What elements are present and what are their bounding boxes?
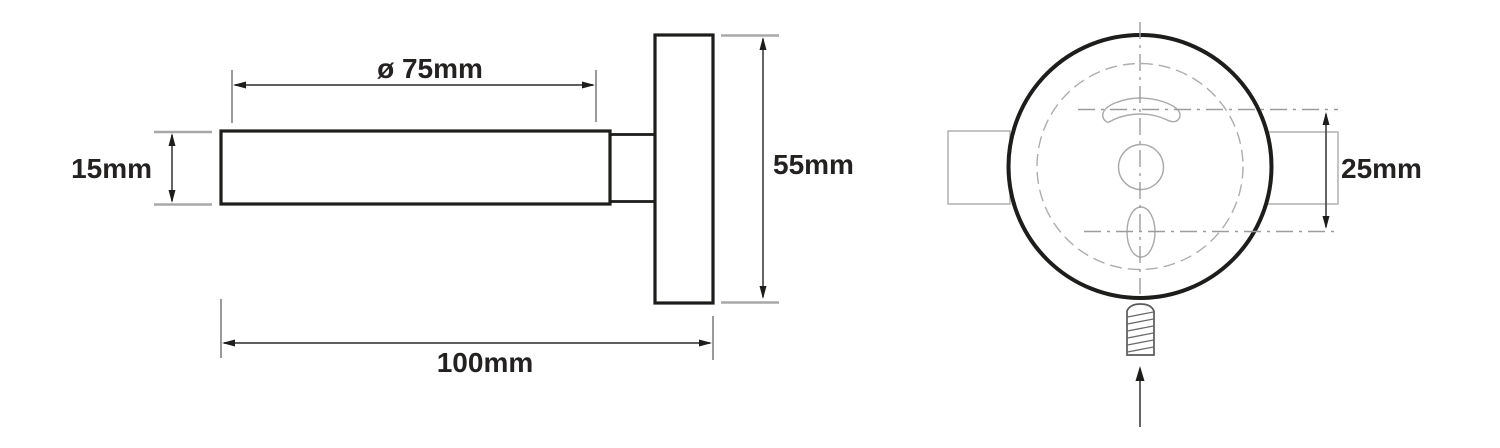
arrowhead-down: [1323, 216, 1330, 229]
side-view: ø 75mm 15mm 55mm 100mm: [71, 35, 854, 378]
arrowhead-up: [760, 37, 767, 50]
dimension-label-rod-length: ø 75mm: [377, 53, 483, 84]
arrowhead-up: [1136, 366, 1145, 381]
arrowhead-down: [760, 286, 767, 299]
arrowhead-right: [699, 340, 712, 347]
dimension-label-total-depth: 100mm: [437, 347, 534, 378]
rod-projection-left: [948, 131, 1010, 204]
mounting-screw: [1127, 304, 1154, 355]
arrowhead-right: [582, 82, 595, 89]
dimension-label-plate-diameter: 55mm: [773, 149, 854, 180]
rod-neck: [610, 135, 655, 202]
front-view: 25mm: [948, 22, 1422, 427]
insert-direction-arrow: [1136, 366, 1145, 427]
arrowhead-left: [233, 82, 246, 89]
arrowhead-up: [169, 133, 176, 146]
arrowhead-up: [1323, 112, 1330, 125]
dimension-label-rod-diameter: 15mm: [71, 153, 152, 184]
drawing-svg: ø 75mm 15mm 55mm 100mm: [0, 0, 1500, 448]
technical-drawing-canvas: ø 75mm 15mm 55mm 100mm: [0, 0, 1500, 448]
dimension-label-hole-spacing: 25mm: [1341, 153, 1422, 184]
arrowhead-left: [222, 340, 235, 347]
dimension-total-depth: 100mm: [221, 299, 713, 378]
wall-rod: [221, 131, 610, 204]
dimension-rod-length: ø 75mm: [232, 53, 596, 123]
dimension-plate-diameter: 55mm: [721, 36, 854, 303]
mounting-plate: [655, 35, 713, 303]
dimension-rod-diameter: 15mm: [71, 132, 212, 205]
arrowhead-down: [169, 190, 176, 203]
